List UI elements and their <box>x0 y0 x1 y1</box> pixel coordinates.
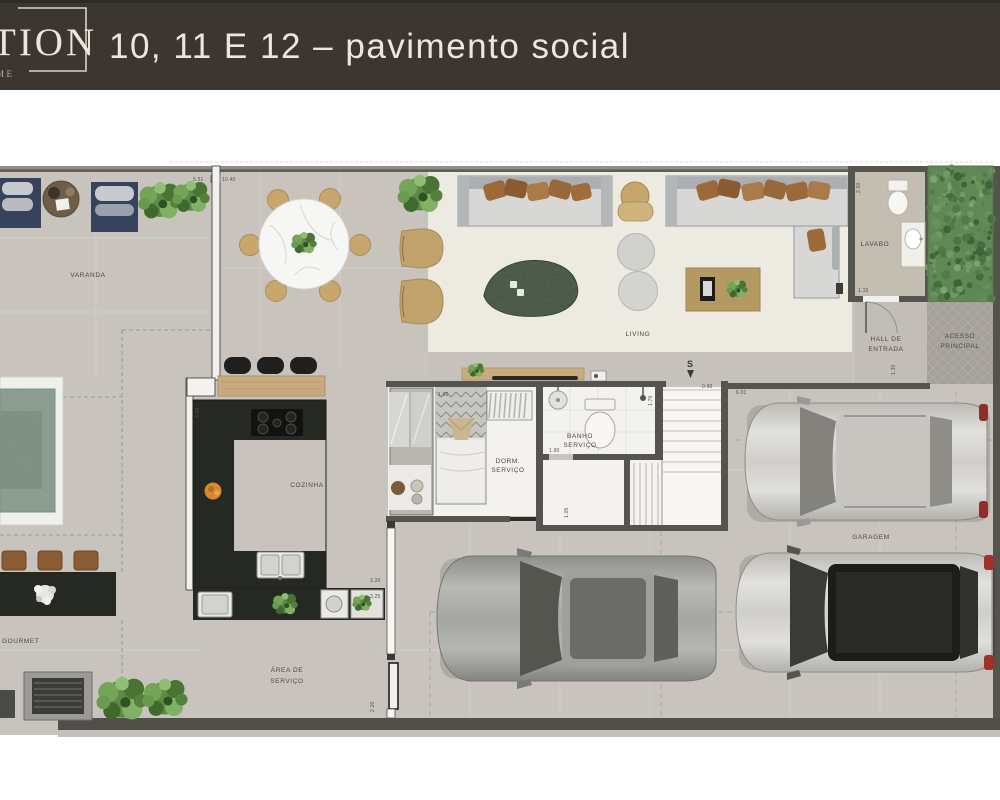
svg-text:1.70: 1.70 <box>648 395 654 406</box>
svg-text:GOURMET: GOURMET <box>2 638 39 645</box>
svg-text:ME: ME <box>0 69 15 79</box>
svg-text:GARAGEM: GARAGEM <box>852 534 889 541</box>
svg-text:VARANDA: VARANDA <box>70 272 105 279</box>
svg-text:SERVIÇO: SERVIÇO <box>563 442 596 449</box>
svg-text:LIVING: LIVING <box>626 331 651 338</box>
svg-text:3.20: 3.20 <box>370 578 381 584</box>
svg-text:2.20: 2.20 <box>370 701 376 712</box>
svg-text:SERVIÇO: SERVIÇO <box>491 467 524 474</box>
svg-text:2.00: 2.00 <box>856 182 862 193</box>
svg-text:10.40: 10.40 <box>222 177 236 183</box>
svg-text:HALL DE: HALL DE <box>870 336 901 343</box>
svg-text:TION: TION <box>0 21 97 64</box>
svg-text:ÁREA DE: ÁREA DE <box>271 665 303 674</box>
svg-text:3.06: 3.06 <box>195 407 201 418</box>
svg-text:1.90: 1.90 <box>549 448 560 454</box>
svg-text:6.51: 6.51 <box>193 177 204 183</box>
svg-text:1.15: 1.15 <box>858 288 869 294</box>
svg-text:BANHO: BANHO <box>567 433 593 440</box>
svg-text:1.65: 1.65 <box>438 392 449 398</box>
svg-text:10, 11 E 12 – pavimento social: 10, 11 E 12 – pavimento social <box>109 27 630 66</box>
svg-text:LAVABO: LAVABO <box>861 241 890 248</box>
svg-text:ACESSO: ACESSO <box>945 333 976 340</box>
svg-text:0.90: 0.90 <box>702 384 713 390</box>
svg-text:1.05: 1.05 <box>564 507 570 518</box>
svg-text:3.25: 3.25 <box>370 594 381 600</box>
svg-text:SERVIÇO: SERVIÇO <box>270 678 303 685</box>
svg-text:ENTRADA: ENTRADA <box>868 346 903 353</box>
svg-text:1.30: 1.30 <box>891 364 897 375</box>
svg-text:DORM.: DORM. <box>496 458 521 465</box>
svg-text:S: S <box>687 359 693 369</box>
svg-text:PRINCIPAL: PRINCIPAL <box>940 343 979 350</box>
svg-text:6.01: 6.01 <box>736 390 747 396</box>
svg-text:COZINHA: COZINHA <box>290 482 324 489</box>
